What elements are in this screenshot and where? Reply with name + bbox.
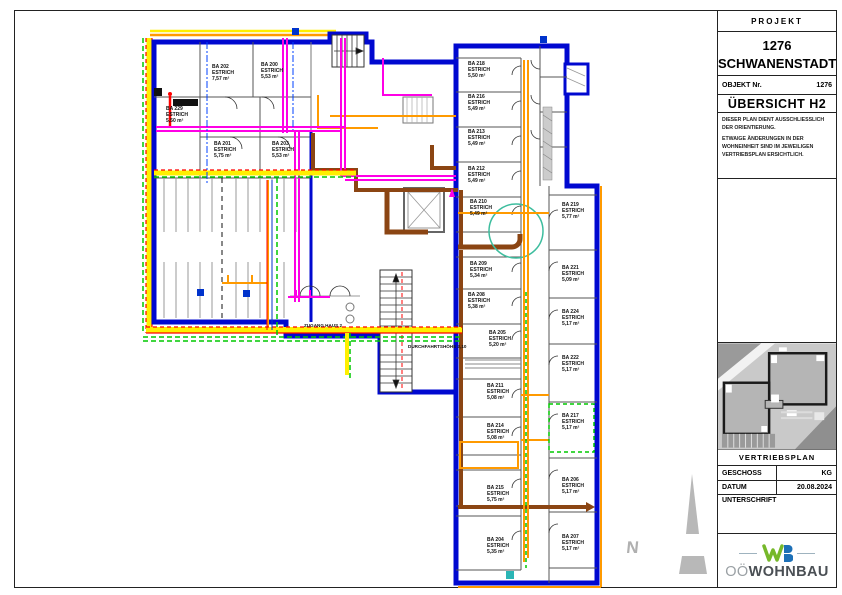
logo-line-right [797, 553, 815, 554]
objekt-label: OBJEKT Nr. [722, 82, 762, 89]
project-name: 1276 SCHWANENSTADT [718, 32, 836, 76]
objekt-row: OBJEKT Nr. 1276 [718, 76, 836, 95]
datum-label: DATUM [718, 481, 777, 494]
logo-line-left [739, 553, 757, 554]
site-plan-graphic [718, 343, 836, 450]
objekt-value: 1276 [816, 82, 832, 89]
drawing-sheet: N BA 229ESTRICH5,50 m²BA 202ESTRICH7,57 … [0, 0, 842, 595]
site-plan-thumbnail [718, 342, 836, 450]
logo-prefix: OÖ [725, 564, 748, 580]
logo-name: WOHNBAU [749, 564, 829, 580]
datum-value: 20.08.2024 [777, 481, 836, 494]
stair-top [332, 35, 364, 67]
plan-type-label: VERTRIEBSPLAN [718, 450, 836, 466]
project-number: 1276 [718, 37, 836, 55]
logo-mark [739, 543, 815, 563]
geschoss-label: GESCHOSS [718, 466, 777, 480]
geschoss-value: KG [777, 466, 836, 480]
empty-cell [718, 179, 836, 342]
title-block: PROJEKT 1276 SCHWANENSTADT OBJEKT Nr. 12… [717, 10, 837, 588]
unterschrift-cell: UNTERSCHRIFT [718, 495, 836, 534]
projekt-header: PROJEKT [718, 11, 836, 32]
floor-plan: N [0, 0, 842, 595]
sheet-title: ÜBERSICHT H2 [718, 95, 836, 113]
geschoss-row: GESCHOSS KG [718, 466, 836, 481]
notes: DIESER PLAN DIENT AUSSCHLIESSLICH DER OR… [718, 113, 836, 179]
wb-mark-icon [761, 543, 793, 563]
north-indicator: N [625, 474, 707, 574]
company-logo: OÖWOHNBAU [718, 534, 836, 589]
note-line: DIESER PLAN DIENT AUSSCHLIESSLICH DER OR… [722, 116, 832, 132]
logo-text: OÖWOHNBAU [725, 565, 828, 580]
project-city: SCHWANENSTADT [718, 55, 836, 73]
note-line: ETWAIGE ÄNDERUNGEN IN DER WOHNEINHEIT SI… [722, 135, 832, 159]
north-label: N [625, 538, 639, 557]
datum-row: DATUM 20.08.2024 [718, 481, 836, 495]
